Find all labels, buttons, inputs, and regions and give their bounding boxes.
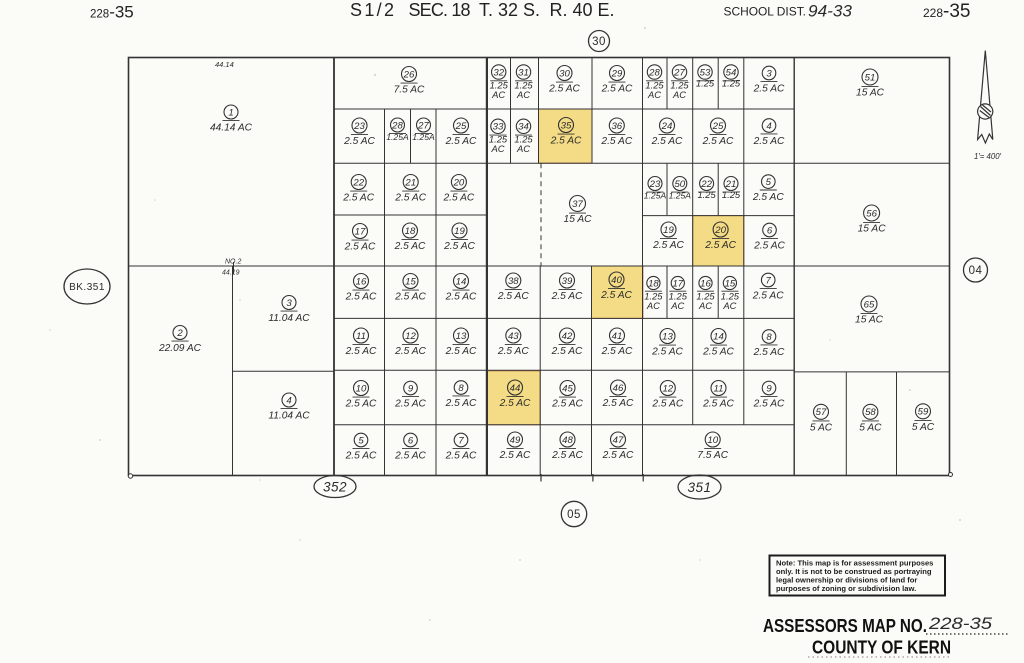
svg-text:24: 24 [661,121,673,132]
svg-text:1′= 400′: 1′= 400′ [974,152,1002,161]
svg-text:9: 9 [408,383,414,394]
svg-text:44.14 AC: 44.14 AC [210,123,253,134]
svg-text:15: 15 [405,276,416,287]
svg-text:AC: AC [516,89,530,100]
svg-text:2.5 AC: 2.5 AC [445,292,477,303]
svg-text:29: 29 [611,68,623,79]
svg-text:4: 4 [766,121,771,132]
svg-text:SCHOOL DIST.: SCHOOL DIST. [724,5,807,19]
svg-text:20: 20 [453,177,465,188]
svg-text:25: 25 [455,121,467,132]
svg-text:13: 13 [662,331,673,342]
svg-text:2.5 AC: 2.5 AC [753,84,785,95]
svg-text:2.5 AC: 2.5 AC [394,346,426,357]
svg-text:1: 1 [228,107,233,118]
svg-text:2.5 AC: 2.5 AC [651,399,683,410]
svg-text:56: 56 [866,208,877,219]
svg-text:30: 30 [592,36,606,48]
svg-text:4: 4 [286,395,291,406]
svg-text:2.5 AC: 2.5 AC [345,451,377,462]
svg-text:15 AC: 15 AC [856,88,885,99]
svg-text:37: 37 [572,199,583,210]
svg-text:2: 2 [176,328,183,339]
svg-text:1.25: 1.25 [697,189,716,200]
svg-text:49: 49 [510,435,521,446]
svg-text:2.5 AC: 2.5 AC [551,399,583,410]
svg-text:2.5 AC: 2.5 AC [445,136,477,147]
svg-text:48: 48 [562,435,573,446]
svg-text:2.5 AC: 2.5 AC [499,450,531,461]
svg-text:65: 65 [864,299,875,310]
svg-text:2.5 AC: 2.5 AC [551,450,583,461]
svg-text:351: 351 [687,480,711,495]
svg-text:23: 23 [649,179,661,190]
svg-text:SEC. 18: SEC. 18 [409,0,471,20]
svg-text:2.5 AC: 2.5 AC [753,347,785,358]
svg-text:2.5 AC: 2.5 AC [445,451,477,462]
svg-text:16: 16 [356,276,367,287]
svg-text:6: 6 [408,435,414,446]
svg-text:8: 8 [458,383,464,394]
svg-text:14: 14 [456,276,467,287]
svg-text:1.25: 1.25 [722,78,741,89]
svg-text:44: 44 [510,383,521,394]
svg-text:2.5 AC: 2.5 AC [702,347,734,358]
svg-text:21: 21 [404,177,416,188]
svg-text:18: 18 [648,278,659,289]
svg-text:2.5 AC: 2.5 AC [343,136,375,147]
svg-text:25: 25 [712,121,724,132]
svg-text:12: 12 [662,383,673,394]
svg-text:2.5 AC: 2.5 AC [550,136,582,147]
svg-text:1.25: 1.25 [722,189,741,200]
svg-text:purposes of zoning or subdivis: purposes of zoning or subdivision law. [776,584,916,593]
svg-text:2.5 AC: 2.5 AC [753,399,785,410]
svg-text:2.5 AC: 2.5 AC [702,136,734,147]
svg-text:94-33: 94-33 [808,2,853,21]
svg-text:17: 17 [672,278,683,289]
svg-text:23: 23 [353,121,365,132]
svg-text:2.5 AC: 2.5 AC [601,84,633,95]
svg-text:12: 12 [405,331,416,342]
svg-text:2.5 AC: 2.5 AC [345,399,377,410]
svg-text:2.5 AC: 2.5 AC [753,136,785,147]
svg-text:3: 3 [766,68,772,79]
svg-text:43: 43 [508,331,519,342]
svg-text:2.5 AC: 2.5 AC [497,291,529,302]
svg-text:11.04 AC: 11.04 AC [268,313,310,324]
svg-text:2.5 AC: 2.5 AC [600,290,632,301]
svg-text:COUNTY OF KERN: COUNTY OF KERN [812,637,951,658]
svg-text:32: 32 [493,67,504,78]
svg-text:11.04 AC: 11.04 AC [268,411,310,422]
svg-text:2.5 AC: 2.5 AC [551,346,583,357]
svg-text:2.5 AC: 2.5 AC [345,346,377,357]
svg-text:2.5 AC: 2.5 AC [600,136,632,147]
svg-text:3: 3 [286,298,292,309]
svg-text:2.5 AC: 2.5 AC [394,241,426,252]
svg-text:22.09 AC: 22.09 AC [158,343,202,354]
svg-text:1.25: 1.25 [696,78,715,89]
svg-text:5 AC: 5 AC [912,422,935,433]
svg-text:15 AC: 15 AC [855,315,884,326]
svg-text:27: 27 [673,67,685,78]
svg-text:27: 27 [417,120,429,131]
svg-text:38: 38 [508,276,519,287]
svg-text:16: 16 [700,278,711,289]
svg-text:57: 57 [816,407,827,418]
svg-text:5: 5 [766,177,772,188]
svg-text:2.5 AC: 2.5 AC [752,291,784,302]
svg-text:2.5 AC: 2.5 AC [548,84,580,95]
svg-text:2.5 AC: 2.5 AC [602,450,634,461]
svg-text:7.5 AC: 7.5 AC [697,450,728,461]
svg-text:2.5 AC: 2.5 AC [601,346,633,357]
svg-text:2.5 AC: 2.5 AC [445,346,477,357]
svg-text:S1/2: S1/2 [350,0,394,20]
svg-text:34: 34 [518,122,529,133]
svg-text:1.25A: 1.25A [386,132,409,142]
svg-text:7: 7 [458,435,464,446]
svg-text:15: 15 [725,278,736,289]
svg-text:2.5 AC: 2.5 AC [342,193,374,204]
svg-text:59: 59 [918,407,929,418]
svg-text:45: 45 [562,383,573,394]
svg-text:1.25A: 1.25A [669,190,692,200]
svg-text:36: 36 [611,121,622,132]
svg-text:352: 352 [323,479,347,494]
svg-text:BK.351: BK.351 [69,282,105,293]
svg-text:8: 8 [766,332,772,343]
svg-text:AC: AC [516,143,530,154]
svg-text:30: 30 [559,68,570,79]
svg-text:46: 46 [613,383,624,394]
svg-text:17: 17 [355,226,366,237]
svg-text:58: 58 [865,407,876,418]
svg-text:AC: AC [698,300,712,311]
svg-text:AC: AC [490,143,504,154]
svg-text:42: 42 [562,331,573,342]
svg-text:1.25A: 1.25A [412,132,435,142]
svg-text:44.19: 44.19 [222,270,240,277]
svg-text:40: 40 [611,275,622,286]
svg-text:10: 10 [707,435,718,446]
svg-text:2.5 AC: 2.5 AC [651,136,683,147]
svg-text:10: 10 [356,383,367,394]
svg-text:2.5 AC: 2.5 AC [344,242,376,253]
svg-text:1.25A: 1.25A [644,190,667,200]
svg-text:AC: AC [672,89,686,100]
svg-text:11: 11 [714,383,724,394]
svg-text:13: 13 [456,331,467,342]
svg-text:35: 35 [561,120,572,131]
svg-text:5 AC: 5 AC [810,422,833,433]
svg-text:47: 47 [613,435,624,446]
svg-text:2.5 AC: 2.5 AC [551,291,583,302]
svg-text:2.5 AC: 2.5 AC [752,192,784,203]
svg-text:18: 18 [405,226,416,237]
svg-text:2.5 AC: 2.5 AC [753,241,785,252]
svg-text:2.5 AC: 2.5 AC [394,451,426,462]
svg-text:T. 32 S.: T. 32 S. [479,0,540,20]
svg-text:5: 5 [358,435,364,446]
svg-text:2.5 AC: 2.5 AC [602,398,634,409]
svg-text:228-35: 228-35 [928,614,993,633]
svg-text:AC: AC [491,89,505,100]
svg-text:33: 33 [493,122,504,133]
svg-text:26: 26 [403,69,415,80]
svg-text:51: 51 [865,72,876,83]
svg-text:2.5 AC: 2.5 AC [394,292,426,303]
svg-text:15 AC: 15 AC [858,224,887,235]
svg-text:AC: AC [647,89,661,100]
svg-text:AC: AC [670,300,684,311]
svg-text:11: 11 [356,331,366,342]
svg-text:2.5 AC: 2.5 AC [443,241,475,252]
svg-text:2.5 AC: 2.5 AC [345,292,377,303]
svg-text:2.5 AC: 2.5 AC [704,240,736,251]
svg-text:41: 41 [612,331,623,342]
svg-text:31: 31 [518,67,529,78]
svg-text:44.14: 44.14 [215,60,234,69]
svg-text:2.5 AC: 2.5 AC [394,193,426,204]
svg-text:15 AC: 15 AC [564,214,593,225]
svg-text:R. 40 E.: R. 40 E. [550,0,615,20]
svg-text:05: 05 [567,509,581,521]
svg-text:28: 28 [391,120,403,131]
svg-text:22: 22 [352,177,364,188]
svg-text:2.5 AC: 2.5 AC [702,399,734,410]
svg-text:14: 14 [713,331,724,342]
svg-text:20: 20 [714,225,726,236]
svg-text:39: 39 [562,276,573,287]
svg-text:19: 19 [663,225,674,236]
svg-text:AC: AC [722,300,736,311]
svg-text:9: 9 [766,383,772,394]
svg-text:7: 7 [766,275,772,286]
svg-text:2.5 AC: 2.5 AC [443,193,475,204]
svg-text:50: 50 [674,179,685,190]
svg-text:2.5 AC: 2.5 AC [651,347,683,358]
svg-text:2.5 AC: 2.5 AC [652,240,684,251]
svg-text:5 AC: 5 AC [859,422,882,433]
svg-text:AC: AC [646,300,660,311]
svg-text:28: 28 [648,67,660,78]
svg-text:19: 19 [454,226,465,237]
svg-text:04: 04 [969,265,983,277]
svg-text:2.5 AC: 2.5 AC [499,398,531,409]
svg-text:2.5 AC: 2.5 AC [394,399,426,410]
svg-text:2.5 AC: 2.5 AC [497,346,529,357]
svg-text:6: 6 [767,225,773,236]
svg-text:ASSESSORS MAP NO.: ASSESSORS MAP NO. [763,615,927,636]
svg-text:2.5 AC: 2.5 AC [445,398,477,409]
svg-text:7.5 AC: 7.5 AC [394,85,425,96]
